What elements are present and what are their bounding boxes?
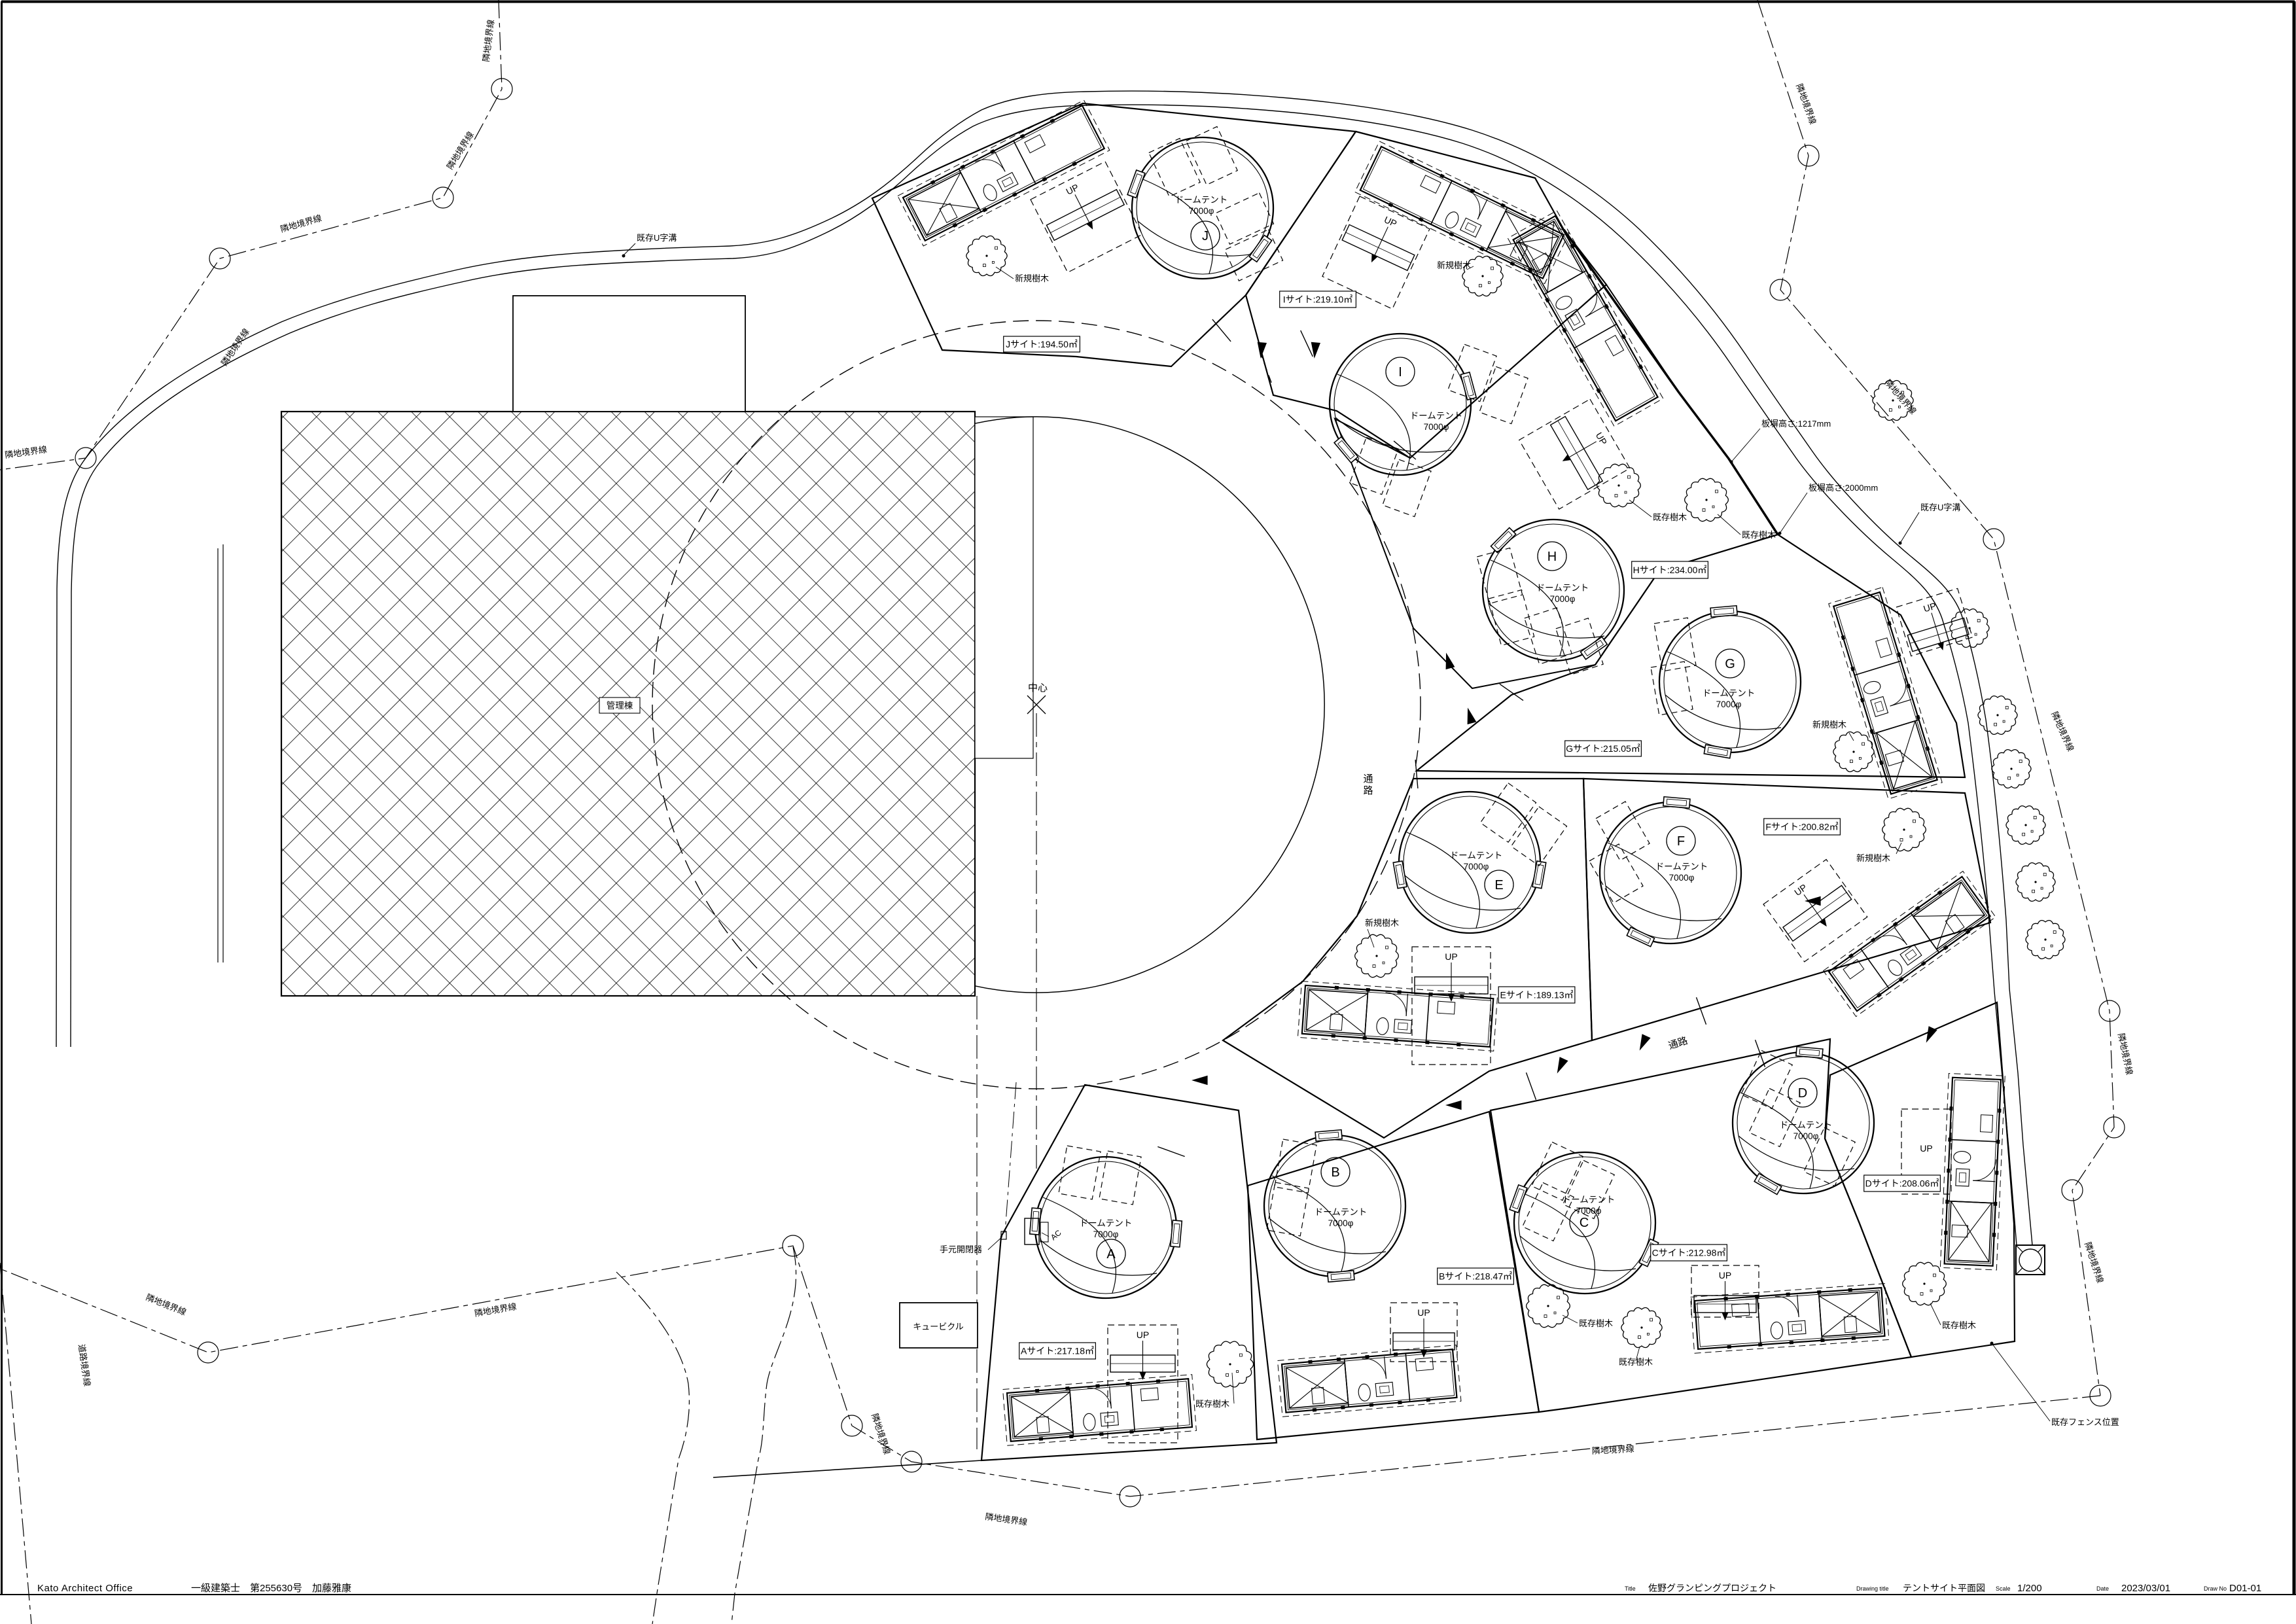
svg-text:I: I (1398, 365, 1402, 380)
svg-text:Cサイト:212.98㎡: Cサイト:212.98㎡ (1652, 1248, 1726, 1258)
svg-text:Date: Date (2096, 1585, 2109, 1592)
svg-text:Scale: Scale (1996, 1585, 2011, 1592)
svg-text:UP: UP (1920, 1143, 1932, 1154)
svg-text:E: E (1494, 878, 1503, 892)
svg-text:テントサイト平面図: テントサイト平面図 (1903, 1583, 1985, 1593)
svg-text:管理棟: 管理棟 (607, 701, 633, 711)
svg-text:Iサイト:219.10㎡: Iサイト:219.10㎡ (1283, 294, 1353, 305)
svg-text:一級建築士 第255630号 加藤雅康: 一級建築士 第255630号 加藤雅康 (191, 1582, 351, 1594)
svg-text:ドームテント: ドームテント (1450, 851, 1503, 860)
svg-text:キュービクル: キュービクル (913, 1322, 964, 1332)
svg-text:新規樹木: 新規樹木 (1015, 274, 1049, 283)
svg-text:既存U字溝: 既存U字溝 (637, 233, 677, 243)
svg-text:既存樹木: 既存樹木 (1579, 1318, 1613, 1328)
svg-text:Hサイト:234.00㎡: Hサイト:234.00㎡ (1633, 565, 1707, 575)
svg-text:既存樹木: 既存樹木 (1195, 1399, 1229, 1409)
svg-text:既存樹木: 既存樹木 (1619, 1357, 1653, 1367)
svg-text:A: A (1106, 1247, 1116, 1262)
svg-text:佐野グランピングプロジェクト: 佐野グランピングプロジェクト (1648, 1583, 1776, 1593)
svg-text:7000φ: 7000φ (1464, 862, 1489, 872)
svg-text:新規樹木: 新規樹木 (1365, 918, 1399, 928)
svg-text:Eサイト:189.13㎡: Eサイト:189.13㎡ (1500, 990, 1573, 1000)
svg-text:G: G (1725, 657, 1735, 671)
svg-text:ドームテント: ドームテント (1563, 1195, 1616, 1205)
svg-text:7000φ: 7000φ (1424, 422, 1449, 432)
svg-text:UP: UP (1719, 1270, 1731, 1280)
svg-text:Bサイト:218.47㎡: Bサイト:218.47㎡ (1439, 1271, 1512, 1282)
svg-text:D01-01: D01-01 (2229, 1583, 2261, 1594)
svg-text:Jサイト:194.50㎡: Jサイト:194.50㎡ (1006, 339, 1078, 349)
svg-text:ドームテント: ドームテント (1080, 1218, 1133, 1228)
svg-text:通: 通 (1363, 773, 1373, 785)
svg-text:7000φ: 7000φ (1189, 206, 1214, 216)
svg-text:7000φ: 7000φ (1716, 699, 1742, 709)
svg-text:中心: 中心 (1028, 682, 1048, 694)
svg-text:B: B (1331, 1165, 1339, 1180)
svg-text:7000φ: 7000φ (1328, 1218, 1354, 1228)
svg-text:UP: UP (1137, 1330, 1149, 1340)
svg-text:H: H (1547, 550, 1557, 564)
svg-text:UP: UP (1445, 951, 1457, 962)
svg-text:新規樹木: 新規樹木 (1437, 260, 1471, 270)
svg-text:ドームテント: ドームテント (1315, 1207, 1368, 1217)
svg-text:Dサイト:208.06㎡: Dサイト:208.06㎡ (1865, 1178, 1939, 1189)
svg-text:既存樹木: 既存樹木 (1653, 512, 1687, 522)
svg-text:7000φ: 7000φ (1669, 873, 1695, 883)
svg-text:既存樹木: 既存樹木 (1742, 530, 1776, 540)
svg-text:Draw No: Draw No (2204, 1585, 2227, 1592)
svg-text:ドームテント: ドームテント (1703, 688, 1756, 698)
svg-text:既存U字溝: 既存U字溝 (1920, 503, 1960, 512)
svg-text:7000φ: 7000φ (1793, 1131, 1819, 1141)
svg-text:ドームテント: ドームテント (1655, 862, 1708, 872)
svg-text:Fサイト:200.82㎡: Fサイト:200.82㎡ (1765, 822, 1838, 832)
svg-text:板塀高さ:1217mm: 板塀高さ:1217mm (1761, 419, 1831, 429)
svg-text:7000φ: 7000φ (1576, 1206, 1602, 1216)
svg-text:手元開閉器: 手元開閉器 (940, 1244, 982, 1254)
svg-text:Aサイト:217.18㎡: Aサイト:217.18㎡ (1021, 1346, 1094, 1356)
svg-text:C: C (1580, 1216, 1589, 1230)
svg-text:J: J (1202, 229, 1209, 243)
svg-text:新規樹木: 新規樹木 (1812, 720, 1846, 730)
svg-text:1/200: 1/200 (2017, 1583, 2042, 1594)
svg-text:Kato Architect Office: Kato Architect Office (37, 1583, 133, 1594)
svg-text:UP: UP (1417, 1307, 1430, 1318)
svg-text:7000φ: 7000φ (1093, 1229, 1119, 1239)
svg-text:路: 路 (1363, 785, 1373, 796)
svg-text:7000φ: 7000φ (1550, 594, 1576, 604)
svg-text:板塀高さ:2000mm: 板塀高さ:2000mm (1809, 483, 1878, 493)
svg-text:F: F (1677, 834, 1685, 849)
svg-text:ドームテント: ドームテント (1536, 583, 1589, 593)
svg-text:ドームテント: ドームテント (1780, 1120, 1833, 1130)
svg-text:Title: Title (1625, 1585, 1636, 1592)
svg-text:既存フェンス位置: 既存フェンス位置 (2051, 1417, 2119, 1427)
svg-text:D: D (1798, 1086, 1807, 1101)
svg-text:ドームテント: ドームテント (1175, 195, 1228, 205)
svg-text:新規樹木: 新規樹木 (1856, 853, 1890, 863)
svg-text:ドームテント: ドームテント (1410, 411, 1463, 421)
svg-text:Drawing title: Drawing title (1856, 1585, 1889, 1592)
svg-text:Gサイト:215.05㎡: Gサイト:215.05㎡ (1566, 743, 1640, 754)
svg-text:既存樹木: 既存樹木 (1942, 1320, 1976, 1330)
svg-text:2023/03/01: 2023/03/01 (2121, 1583, 2170, 1594)
